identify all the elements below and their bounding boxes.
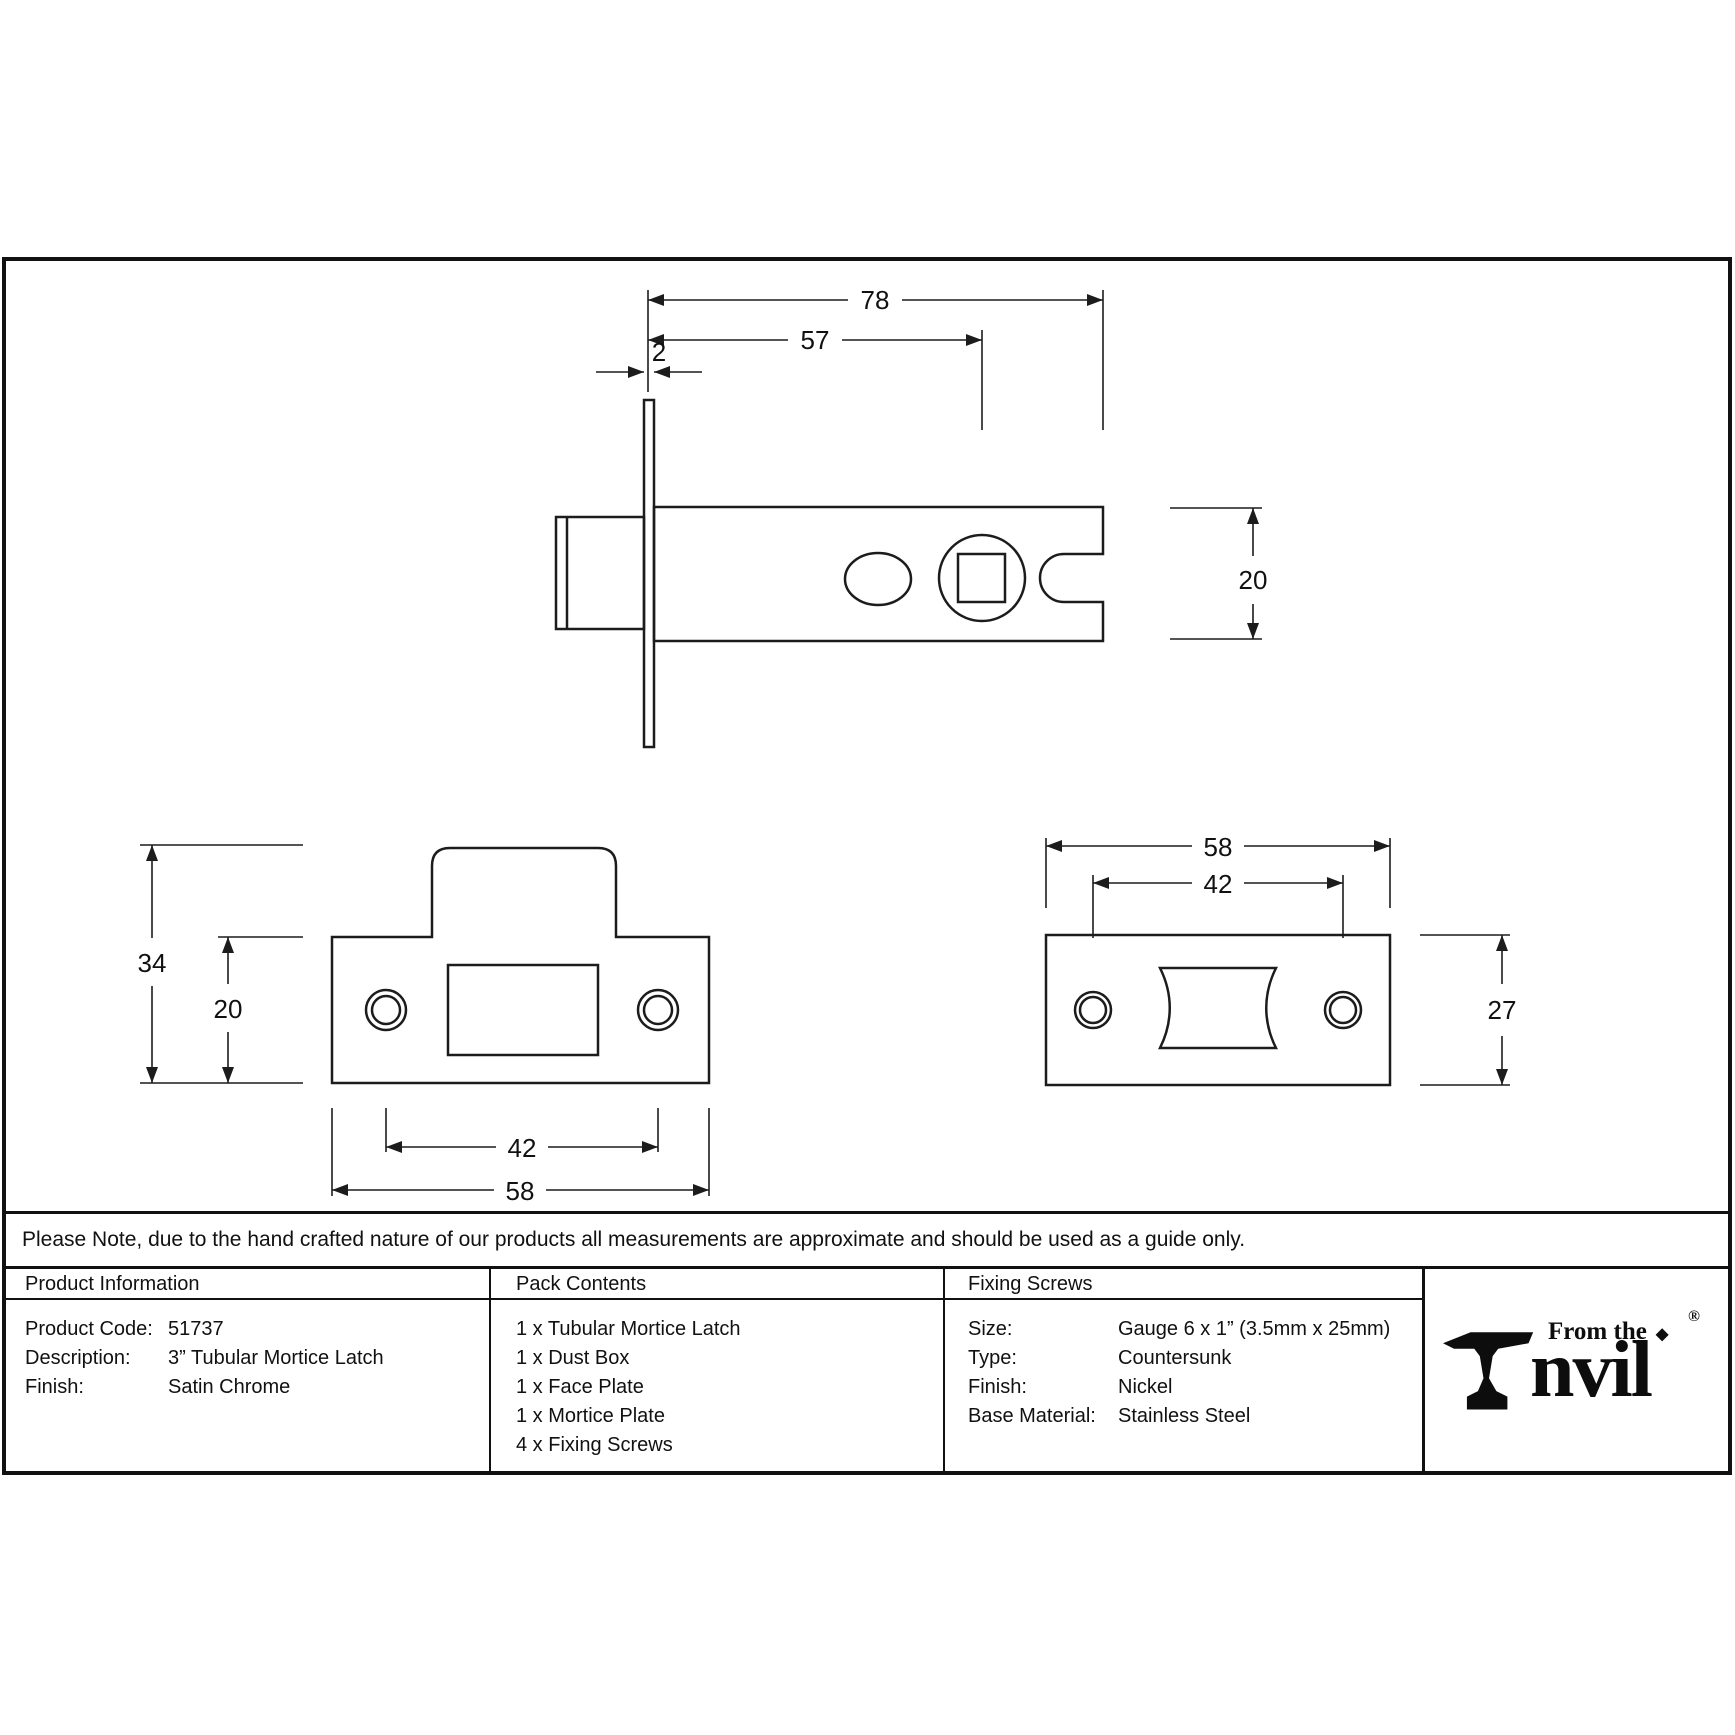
dim-label-latch-backset: 57 (801, 325, 830, 355)
brand-logo: nvil From the ◆ ® (1440, 1310, 1730, 1430)
face-plate-screw-hole-left-inner (372, 996, 400, 1024)
mortice-plate-screw-hole-right-inner (1330, 997, 1356, 1023)
screw-material-label: Base Material: (968, 1405, 1096, 1428)
dim-label-morticeplate-height: 27 (1488, 995, 1517, 1025)
latch-faceplate-edge (644, 400, 654, 747)
table-divider-2 (943, 1266, 945, 1471)
dim-label-latch-overall: 78 (861, 285, 890, 315)
note-band-top-rule (2, 1211, 1732, 1214)
screw-finish-label: Finish: (968, 1376, 1027, 1399)
table-divider-1 (489, 1266, 491, 1471)
table-header-rule (2, 1298, 1424, 1300)
face-plate-view: 34 20 42 58 (138, 845, 709, 1206)
product-code-label: Product Code: (25, 1318, 153, 1341)
fixing-screws-header: Fixing Screws (968, 1273, 1092, 1296)
dim-label-faceplate-overall-height: 34 (138, 948, 167, 978)
dim-label-morticeplate-screw-centres: 42 (1204, 869, 1233, 899)
latch-spindle-hole (939, 535, 1025, 621)
measurements-note: Please Note, due to the hand crafted nat… (22, 1228, 1245, 1252)
dim-label-morticeplate-width: 58 (1204, 832, 1233, 862)
table-divider-3 (1422, 1266, 1425, 1471)
mortice-plate-view: 58 42 27 (1046, 832, 1516, 1085)
mortice-plate-strike-hole (1160, 968, 1276, 1048)
mortice-plate-screw-hole-left-inner (1080, 997, 1106, 1023)
finish-label: Finish: (25, 1376, 84, 1399)
pack-item-1: 1 x Tubular Mortice Latch (516, 1318, 741, 1341)
finish-value: Satin Chrome (168, 1376, 290, 1399)
latch-bolt (556, 517, 644, 629)
dim-label-faceplate-width: 58 (506, 1176, 535, 1206)
pack-item-2: 1 x Dust Box (516, 1347, 629, 1370)
logo-prefix-text: From the (1548, 1318, 1647, 1346)
anvil-logo-icon (1443, 1326, 1535, 1412)
description-label: Description: (25, 1347, 131, 1370)
screw-size-value: Gauge 6 x 1” (3.5mm x 25mm) (1118, 1318, 1390, 1341)
dim-label-latch-height: 20 (1239, 565, 1268, 595)
screw-type-value: Countersunk (1118, 1347, 1231, 1370)
latch-spindle-square (958, 554, 1005, 602)
latch-body-outline (654, 507, 1103, 641)
latch-side-view: 78 57 2 20 (556, 285, 1267, 747)
product-code-value: 51737 (168, 1318, 224, 1341)
screw-finish-value: Nickel (1118, 1376, 1172, 1399)
latch-oval-hole (845, 553, 911, 605)
pack-item-3: 1 x Face Plate (516, 1376, 644, 1399)
pack-contents-header: Pack Contents (516, 1273, 646, 1296)
spec-sheet: 78 57 2 20 (0, 0, 1735, 1735)
dim-label-faceplate-thickness: 2 (652, 337, 666, 367)
screw-material-value: Stainless Steel (1118, 1405, 1250, 1428)
screw-size-label: Size: (968, 1318, 1012, 1341)
mortice-plate-outline (1046, 935, 1390, 1085)
face-plate-latch-hole (448, 965, 598, 1055)
screw-type-label: Type: (968, 1347, 1017, 1370)
technical-drawing: 78 57 2 20 (0, 0, 1735, 1735)
pack-item-4: 1 x Mortice Plate (516, 1405, 665, 1428)
dim-label-faceplate-screw-centres: 42 (508, 1133, 537, 1163)
description-value: 3” Tubular Mortice Latch (168, 1347, 384, 1370)
logo-registered-mark: ® (1688, 1308, 1700, 1326)
pack-item-5: 4 x Fixing Screws (516, 1434, 673, 1457)
product-information-header: Product Information (25, 1273, 200, 1296)
table-top-rule (2, 1266, 1732, 1269)
logo-diamond-icon: ◆ (1656, 1324, 1668, 1344)
dim-label-faceplate-plate-height: 20 (214, 994, 243, 1024)
face-plate-screw-hole-right-inner (644, 996, 672, 1024)
